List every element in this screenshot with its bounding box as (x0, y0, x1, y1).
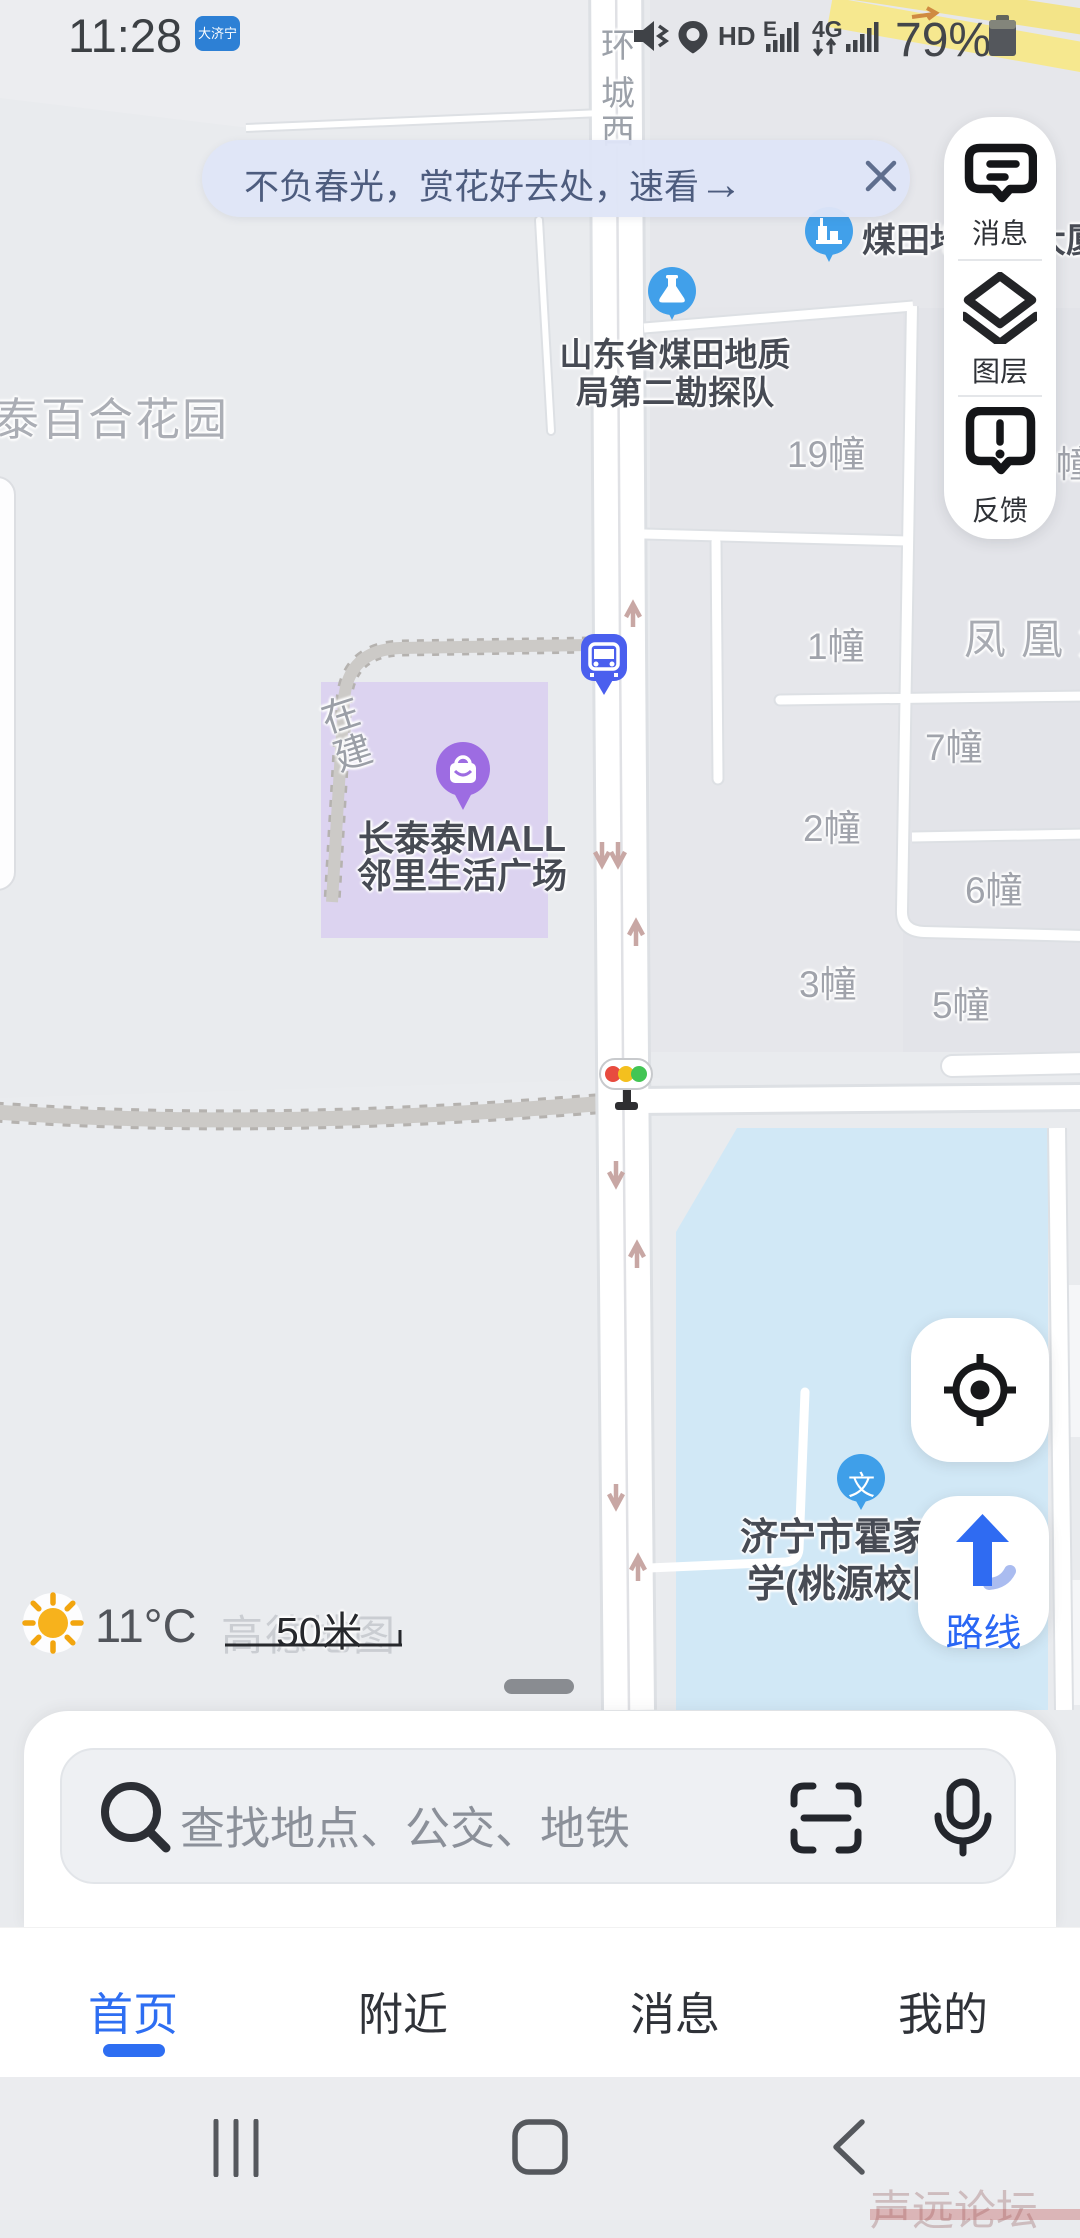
svg-text:4G: 4G (812, 16, 843, 42)
svg-text:E: E (763, 18, 777, 41)
svg-text:HD: HD (718, 21, 756, 51)
